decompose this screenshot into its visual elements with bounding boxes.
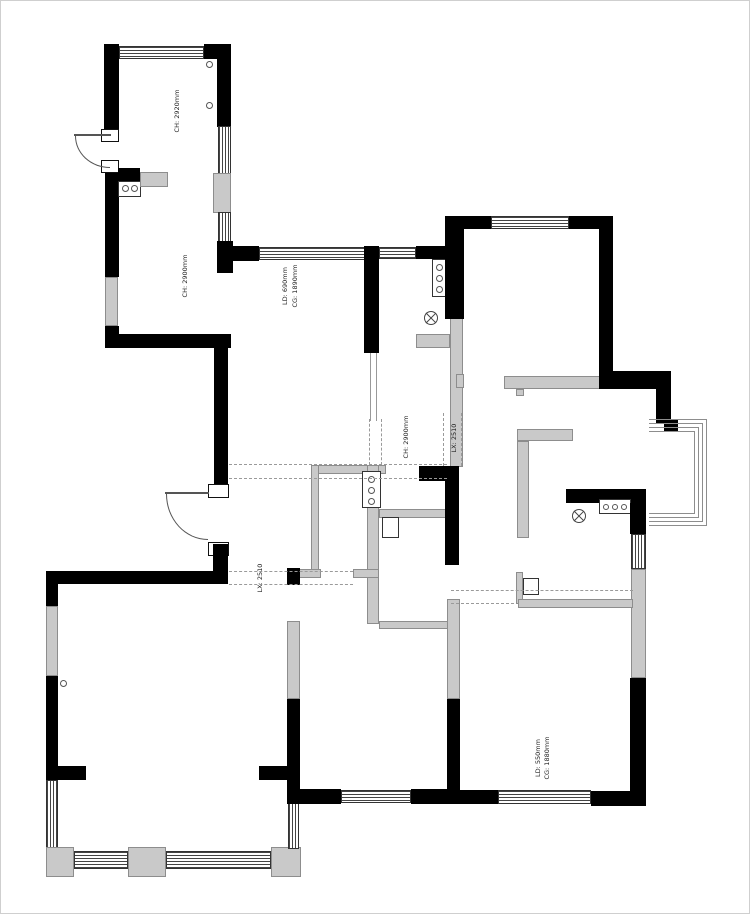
exterior-wall (630, 678, 646, 806)
door-arc (166, 494, 208, 540)
label-beam-height: LX: 2510 (256, 564, 264, 593)
window (288, 803, 299, 849)
counter (140, 172, 168, 187)
label-beam-height: LX: 2510 (450, 424, 458, 453)
exterior-wall (104, 44, 119, 129)
window-panel (631, 569, 646, 678)
bay-window-column (271, 847, 301, 877)
exterior-wall (569, 216, 613, 229)
exterior-wall (445, 216, 464, 319)
exterior-wall (46, 571, 226, 584)
exterior-wall (287, 789, 341, 804)
exterior-wall (656, 389, 671, 423)
window (119, 46, 204, 59)
interior-wall (445, 481, 459, 565)
downlight-icon (60, 680, 67, 687)
downlight-icon (206, 102, 213, 109)
window (491, 216, 569, 229)
door-jamb (456, 374, 464, 388)
window (218, 126, 231, 174)
ceiling-lamp-icon (572, 509, 586, 523)
interior-wall (259, 766, 288, 780)
door-jamb (208, 484, 229, 498)
interior-wall (217, 241, 233, 273)
light-wall (447, 599, 460, 699)
burner-icon (612, 504, 618, 510)
exterior-wall (105, 173, 119, 277)
window (341, 790, 411, 803)
beam-dashed-line (451, 603, 514, 604)
exterior-wall (599, 371, 671, 389)
beam-dashed-line (369, 419, 370, 465)
cabinet-notch (516, 389, 524, 396)
label-window-height: CG: 1890mm (291, 264, 299, 307)
bay-window-column (46, 847, 74, 877)
label-window-sill: LD: 690mm (281, 267, 289, 305)
burner-icon (436, 286, 443, 293)
cabinet (504, 376, 601, 389)
beam-dashed-line (451, 590, 633, 591)
downlight-icon (206, 61, 213, 68)
window (46, 780, 58, 849)
shower-niche (382, 517, 399, 538)
beam-dashed-line (461, 413, 462, 466)
bay-window-column (128, 847, 166, 877)
label-room-height: CH: 2900mm (402, 416, 410, 459)
bay-window (74, 851, 128, 869)
label-room-height: CH: 2920mm (173, 90, 181, 133)
exterior-wall (591, 791, 646, 806)
sink-bowl-icon (368, 487, 375, 494)
interior-wall (105, 334, 231, 348)
light-wall (353, 569, 379, 578)
interior-wall (214, 346, 228, 484)
window-panel (105, 277, 118, 326)
interior-wall (364, 246, 379, 353)
label-window-sill: LD: 550mm (534, 739, 542, 777)
window (218, 212, 231, 243)
beam-dashed-line (443, 413, 444, 466)
exterior-wall (630, 503, 646, 534)
light-wall (311, 465, 319, 576)
beam-dashed-line (229, 464, 447, 465)
light-wall (518, 599, 633, 608)
burner-icon (436, 275, 443, 282)
window-panel (287, 621, 300, 699)
burner-icon (436, 264, 443, 271)
wall-niche (523, 578, 539, 595)
burner-icon (603, 504, 609, 510)
interior-wall (416, 246, 446, 259)
label-room-height: CH: 2900mm (181, 255, 189, 298)
sink-bowl-icon (131, 185, 138, 192)
bay-window (166, 851, 271, 869)
balcony-frame (649, 431, 695, 514)
burner-icon (621, 504, 627, 510)
beam-dashed-line (381, 419, 382, 465)
exterior-wall (204, 44, 231, 59)
sink-bowl-icon (122, 185, 129, 192)
column (213, 173, 231, 213)
floor-plan-canvas: CH: 2920mm CH: 2900mm CG: 1890mm LD: 690… (0, 0, 750, 914)
interior-wall (46, 766, 86, 780)
exterior-wall (46, 676, 58, 769)
exterior-wall (599, 229, 613, 373)
exterior-wall (411, 789, 448, 804)
light-partition (370, 353, 377, 421)
exterior-wall (464, 216, 491, 229)
window-panel (46, 606, 58, 676)
ceiling-lamp-icon (424, 311, 438, 325)
exterior-wall (46, 584, 58, 608)
beam-dashed-line (229, 478, 447, 479)
window (498, 790, 591, 804)
light-wall (517, 441, 529, 538)
door-arc (75, 136, 110, 168)
light-wall (379, 621, 449, 629)
interior-wall (447, 699, 460, 804)
label-window-height: CG: 1880mm (543, 736, 551, 779)
window (259, 247, 366, 260)
exterior-wall (217, 59, 231, 127)
exterior-wall (447, 790, 498, 804)
light-wall (517, 429, 573, 441)
interior-wall (233, 246, 259, 261)
light-wall (416, 334, 450, 348)
window (379, 247, 416, 259)
beam-dashed-line (229, 571, 353, 572)
window (631, 534, 646, 569)
beam-dashed-line (229, 584, 353, 585)
sink-bowl-icon (368, 498, 375, 505)
